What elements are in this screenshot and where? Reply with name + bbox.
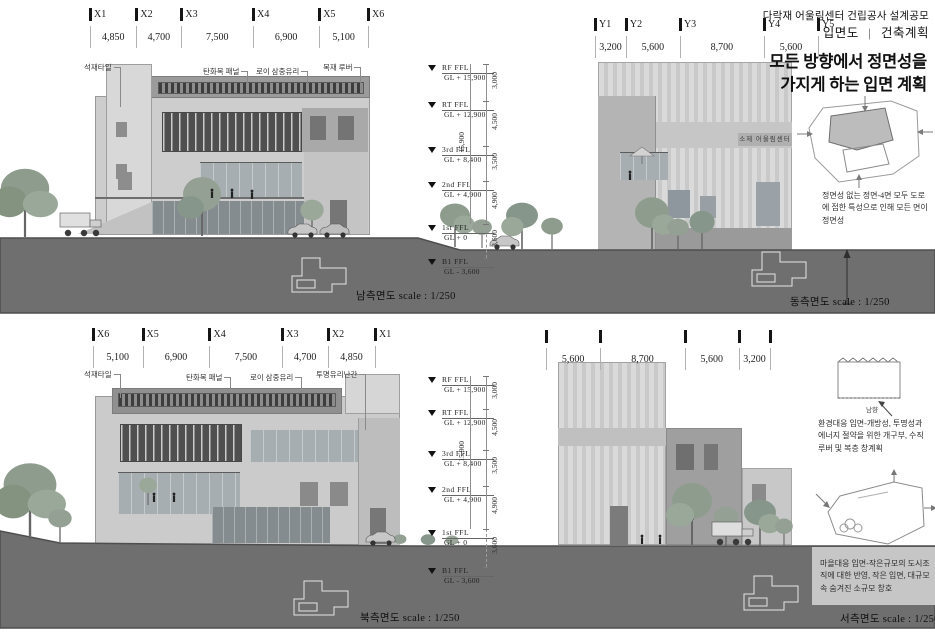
grid-dim-value: 5,600 [685, 354, 739, 365]
grid-tick [684, 330, 687, 343]
key-plan [294, 581, 348, 615]
environment-diagram [826, 352, 934, 418]
key-plan [744, 576, 798, 610]
north-raised-block [345, 374, 400, 414]
grid-label: X4 [257, 9, 269, 20]
height-dim-value: 4,900 [490, 192, 499, 209]
grid-label: X3 [286, 329, 298, 340]
grid-label: X2 [140, 9, 152, 20]
level-gl-value: GL + 0 [444, 538, 467, 547]
grid-tick [208, 328, 211, 341]
level-triangle-icon [428, 182, 436, 188]
west-annex-window [752, 484, 766, 502]
east-caption: 동측면도 scale : 1/250 [790, 294, 890, 309]
grid-label: Y5 [822, 19, 834, 30]
east-window [700, 196, 716, 218]
level-triangle-icon [428, 451, 436, 457]
grid-label: X5 [323, 9, 335, 20]
key-plan [752, 252, 806, 286]
west-door [610, 506, 628, 545]
key-plan [292, 258, 346, 292]
height-dim-value: 3,500 [490, 153, 499, 170]
level-gl-value: GL + 15,900 [444, 73, 486, 82]
grid-tick [763, 18, 766, 31]
level-gl-value: GL - 3,600 [444, 267, 480, 276]
dim-chain-tick [483, 181, 489, 182]
dim-chain-seg-line [486, 376, 487, 529]
environment-note: 환경대응 입면-개방성, 투명성과 에너지 절약을 위한 개구부, 수직루버 및… [818, 418, 928, 455]
material-note: 투명유리난간 [316, 369, 357, 380]
grid-dim-value: 4,700 [282, 352, 328, 363]
level-gl-value: GL + 15,900 [444, 385, 486, 394]
grid-tick [252, 8, 255, 21]
south-door [330, 200, 347, 234]
grid-tick [135, 8, 138, 21]
level-gl-value: GL + 4,900 [444, 495, 482, 504]
height-dim-value: 3,000 [490, 382, 499, 399]
dim-chain-tick [483, 64, 489, 65]
grid-dim-value: 3,200 [739, 354, 770, 365]
south-roof-louver [158, 82, 364, 94]
north-window [300, 482, 318, 506]
grid-dim-value: 7,500 [209, 352, 282, 363]
grid-dim-value: 5,600 [626, 42, 680, 53]
grid-tick [180, 8, 183, 21]
level-triangle-icon [428, 530, 436, 536]
height-dim-value: 4,500 [490, 419, 499, 436]
grid-hairline [770, 348, 771, 370]
total-height-value: 15,900 [457, 441, 466, 462]
grid-tick [318, 8, 321, 21]
north-glass-band [250, 430, 358, 462]
dim-chain-tick [483, 258, 489, 259]
frontality-note: 정면성 없는 정면-4면 모두 도로에 접한 특성으로 인해 모든 면이 정면성 [822, 190, 932, 227]
grid-tick [89, 8, 92, 21]
level-triangle-icon [428, 259, 436, 265]
dim-chain-below-line [486, 224, 487, 258]
material-note: 석재타일 [84, 369, 112, 380]
west-window [676, 496, 694, 520]
level-triangle-icon [428, 225, 436, 231]
grid-dim-value: 8,700 [680, 42, 764, 53]
grid-tick [599, 330, 602, 343]
dim-chain-tick [483, 529, 489, 530]
dim-chain-tick [483, 409, 489, 410]
level-gl-value: GL + 12,900 [444, 418, 486, 427]
east-window [756, 182, 780, 226]
grid-label: Y2 [630, 19, 642, 30]
north-storefront [212, 507, 330, 543]
level-triangle-icon [428, 102, 436, 108]
level-triangle-icon [428, 410, 436, 416]
grid-label: Y1 [599, 19, 611, 30]
grid-tick [594, 18, 597, 31]
grid-dim-value: 5,100 [93, 352, 143, 363]
south-canopy [95, 197, 305, 199]
grid-dim-value: 5,100 [319, 32, 368, 43]
village-note: 마을대응 입면-작은규모의 도시조직에 대한 반영, 작은 입면, 대규모 속 … [820, 558, 930, 595]
grid-dim-value: 7,500 [181, 32, 253, 43]
dim-chain-below-line [486, 529, 487, 567]
grid-tick [92, 328, 95, 341]
grid-label: Y4 [768, 19, 780, 30]
dim-chain-total-line [470, 64, 471, 224]
below-ground-dim-value: 3,600 [490, 230, 499, 247]
level-gl-value: GL - 3,600 [444, 576, 480, 585]
grid-tick [679, 18, 682, 31]
grid-label: X2 [332, 329, 344, 340]
grid-dim-value: 4,850 [90, 32, 136, 43]
grid-dim-value: 3,200 [595, 42, 626, 53]
dim-chain-tick [483, 101, 489, 102]
west-band [558, 428, 666, 446]
south-tower-window [116, 122, 127, 137]
level-triangle-icon [428, 377, 436, 383]
grid-dim-value: 5,600 [764, 42, 818, 53]
height-dim-value: 3,500 [490, 457, 499, 474]
grid-tick [327, 328, 330, 341]
total-height-value: 15,900 [457, 132, 466, 153]
material-note: 로이 삼중유리 [250, 372, 293, 383]
level-gl-value: GL + 4,900 [444, 190, 482, 199]
grid-label: X5 [147, 329, 159, 340]
height-dim-value: 4,900 [490, 497, 499, 514]
level-gl-value: GL + 8,400 [444, 155, 482, 164]
sun-direction-label: 남향 [866, 404, 878, 414]
level-gl-value: GL + 0 [444, 233, 467, 242]
grid-label: X3 [185, 9, 197, 20]
south-window [310, 116, 326, 140]
grid-tick [142, 328, 145, 341]
grid-tick [545, 330, 548, 343]
grid-dim-value: 6,900 [143, 352, 210, 363]
grid-dim-value: 4,700 [136, 32, 181, 43]
grid-tick [374, 328, 377, 341]
dim-chain-tick [483, 486, 489, 487]
dim-chain-total-line [470, 376, 471, 529]
grid-tick [281, 328, 284, 341]
grid-label: X6 [97, 329, 109, 340]
east-balcony-glazing [620, 152, 668, 180]
material-note: 탄화목 패널 [203, 66, 239, 77]
grid-dim-value: 4,850 [328, 352, 375, 363]
grid-hairline [368, 26, 369, 48]
level-triangle-icon [428, 65, 436, 71]
north-louvered-glazing [120, 424, 242, 462]
grid-tick [738, 330, 741, 343]
grid-tick [625, 18, 628, 31]
sheet-category: 건축계획 [881, 26, 929, 40]
west-window [676, 444, 694, 470]
east-facade-sign: 소제 어울림센터 [738, 133, 792, 146]
south-window [118, 172, 132, 190]
east-ground-band [656, 228, 792, 250]
grid-label: X1 [94, 9, 106, 20]
dim-chain-tick [483, 146, 489, 147]
height-dim-value: 4,500 [490, 113, 499, 130]
south-window [338, 116, 354, 140]
grid-label: Y3 [684, 19, 696, 30]
west-window [704, 444, 718, 470]
south-louvered-glazing [162, 112, 302, 152]
north-door [370, 508, 386, 544]
grid-dim-value: 5,600 [546, 354, 600, 365]
north-roof-louver [118, 393, 336, 407]
village-diagram [798, 468, 935, 556]
level-triangle-icon [428, 487, 436, 493]
project-title: 다락재 어울림센터 건립공사 설계공모 [763, 8, 929, 23]
level-triangle-icon [428, 147, 436, 153]
dim-chain-tick [483, 376, 489, 377]
west-annex [742, 468, 792, 545]
level-triangle-icon [428, 568, 436, 574]
height-dim-value: 3,000 [490, 72, 499, 89]
below-ground-dim-value: 3,600 [490, 537, 499, 554]
west-caption: 서측면도 scale : 1/250 [840, 611, 935, 626]
level-gl-value: GL + 12,900 [444, 110, 486, 119]
north-window [330, 482, 348, 506]
grid-hairline [818, 36, 819, 58]
south-caption: 남측면도 scale : 1/250 [356, 288, 456, 303]
south-storefront [152, 201, 304, 234]
material-note: 탄화목 패널 [186, 372, 222, 383]
dim-chain-seg-line [486, 64, 487, 224]
grid-label: X1 [379, 329, 391, 340]
sheet-title: 입면도 | 건축계획 [823, 22, 929, 41]
north-caption: 북측면도 scale : 1/250 [360, 610, 460, 625]
grid-tick [817, 18, 820, 31]
frontality-diagram [795, 96, 935, 188]
grid-label: X6 [372, 9, 384, 20]
title-divider: | [862, 26, 877, 40]
south-balcony-glazing [200, 162, 302, 198]
grid-tick [769, 330, 772, 343]
dim-chain-tick [483, 567, 489, 568]
grid-hairline [375, 346, 376, 368]
design-headline: 모든 방향에서 정면성을 가지게 하는 입면 계획 [769, 50, 927, 96]
elevation-sheet: 소제 어울림센터 [0, 0, 935, 635]
material-note: 석재타일 [84, 62, 112, 73]
material-note: 목재 루버 [323, 62, 352, 73]
dim-chain-tick [483, 224, 489, 225]
grid-label: X4 [213, 329, 225, 340]
grid-tick [367, 8, 370, 21]
material-note: 로이 삼중유리 [256, 66, 299, 77]
east-window [668, 190, 690, 218]
grid-dim-value: 8,700 [600, 354, 684, 365]
dim-chain-tick [483, 450, 489, 451]
grid-dim-value: 6,900 [253, 32, 319, 43]
